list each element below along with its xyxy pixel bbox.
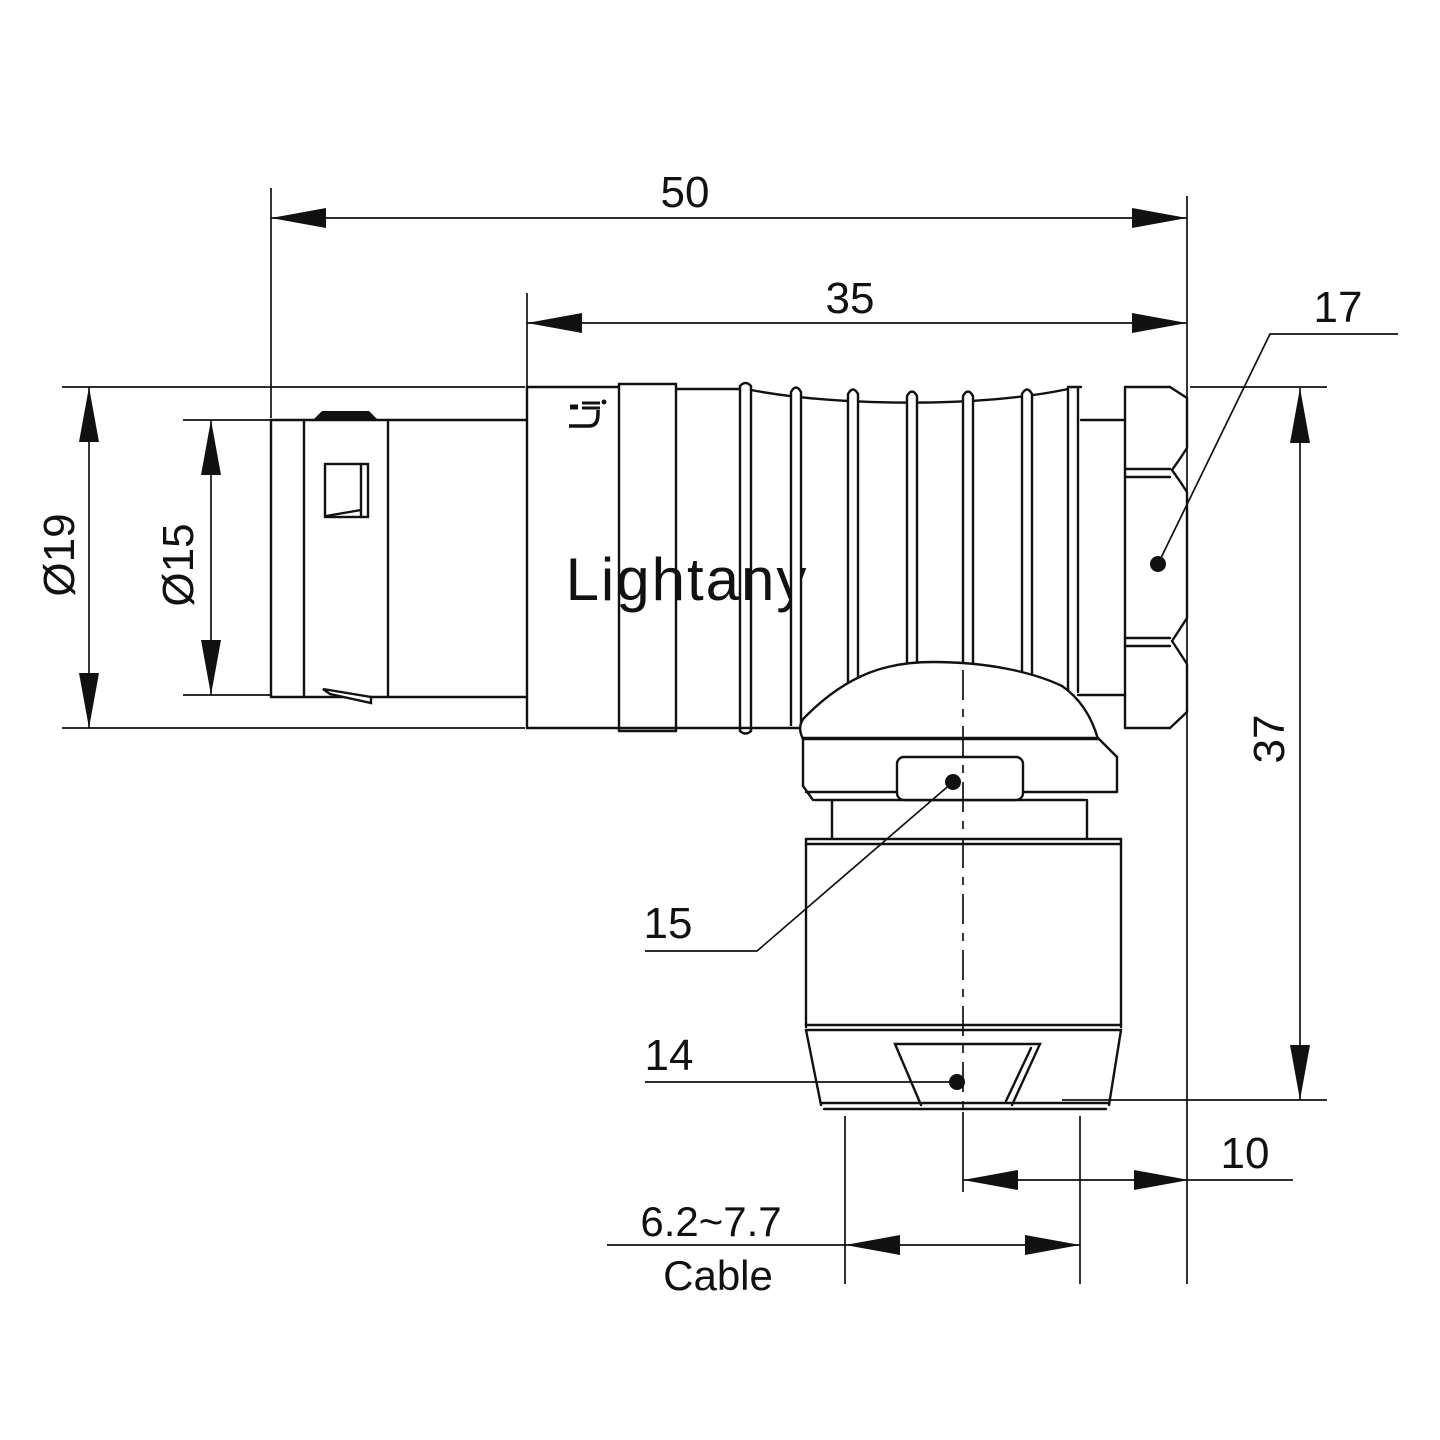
leader-dot: [1150, 556, 1166, 572]
connector-body: [271, 383, 1187, 1110]
watermark-text: Lightany: [566, 546, 809, 613]
dim-dia19-label: Ø19: [35, 513, 84, 596]
cable-range-label: 6.2~7.7: [640, 1198, 781, 1245]
connector-drawing: Lightany: [0, 0, 1440, 1440]
dim-clamp-ref: 14: [645, 1031, 965, 1090]
dim-14-label: 14: [645, 1031, 694, 1080]
dim-50-label: 50: [661, 168, 710, 217]
dim-rear-length: 35: [527, 274, 1187, 386]
dim-outer-diameter: Ø19: [35, 387, 525, 728]
leader-dot: [949, 1074, 965, 1090]
gland-ring: [832, 800, 1087, 839]
dim-10-label: 10: [1221, 1129, 1270, 1178]
dim-17-label: 17: [1314, 283, 1363, 332]
dim-total-height: 37: [1062, 387, 1327, 1100]
rib: [791, 388, 801, 727]
dim-axis-offset: 10: [963, 1112, 1293, 1192]
front-barrel: [271, 411, 527, 703]
dim-35-label: 35: [826, 274, 875, 323]
elbow-dome: [800, 662, 1098, 739]
dim-dia15-label: Ø15: [154, 523, 203, 606]
drawing-canvas: Lightany: [0, 0, 1440, 1440]
rib: [848, 390, 858, 727]
cable-label: Cable: [663, 1252, 773, 1299]
elbow-collar: [803, 738, 1117, 800]
dim-37-label: 37: [1245, 715, 1294, 764]
brand-mark: [569, 400, 607, 427]
dim-inner-diameter: Ø15: [154, 420, 271, 695]
latch-bump: [313, 411, 378, 420]
dim-cable-range: 6.2~7.7 Cable: [607, 1116, 1080, 1299]
dim-15-label: 15: [644, 899, 693, 948]
neck: [1078, 420, 1125, 695]
leader-dot: [945, 774, 961, 790]
